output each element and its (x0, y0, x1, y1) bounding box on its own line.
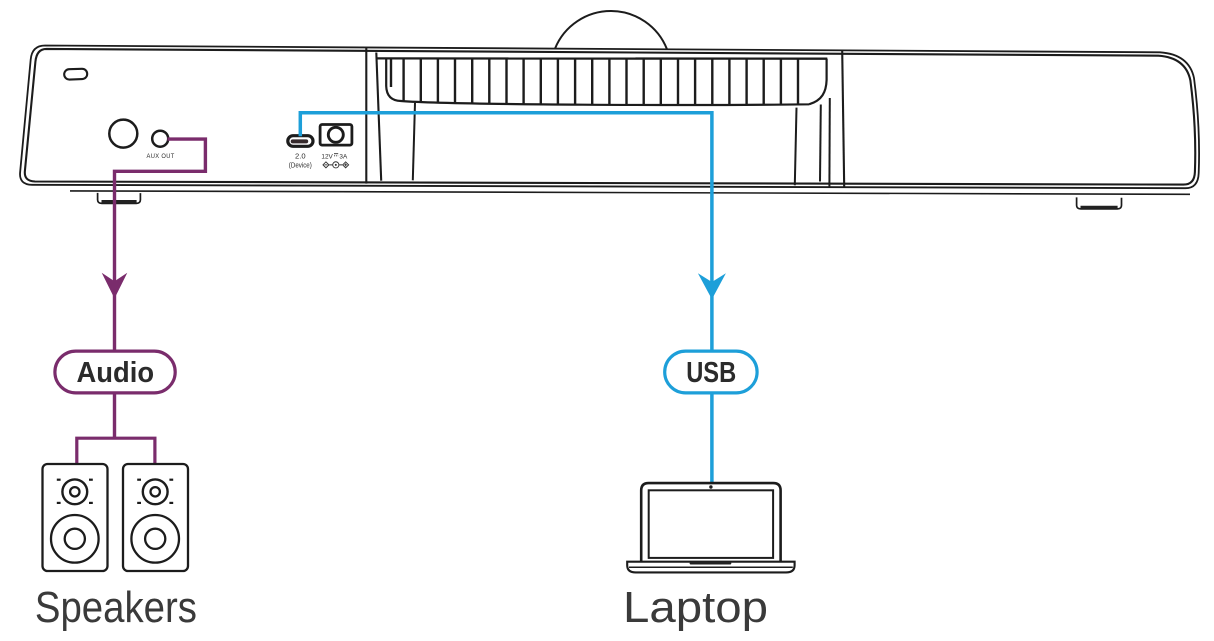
svg-text:3A: 3A (339, 153, 348, 160)
svg-text:12V: 12V (321, 153, 333, 160)
svg-text:Audio: Audio (77, 357, 155, 389)
svg-text:USB: USB (686, 357, 736, 389)
svg-text:(Device): (Device) (289, 161, 312, 170)
svg-text:Speakers: Speakers (35, 583, 197, 632)
svg-text:Laptop: Laptop (623, 583, 768, 632)
svg-text:2.0: 2.0 (295, 151, 306, 160)
svg-text:AUX OUT: AUX OUT (147, 153, 175, 160)
